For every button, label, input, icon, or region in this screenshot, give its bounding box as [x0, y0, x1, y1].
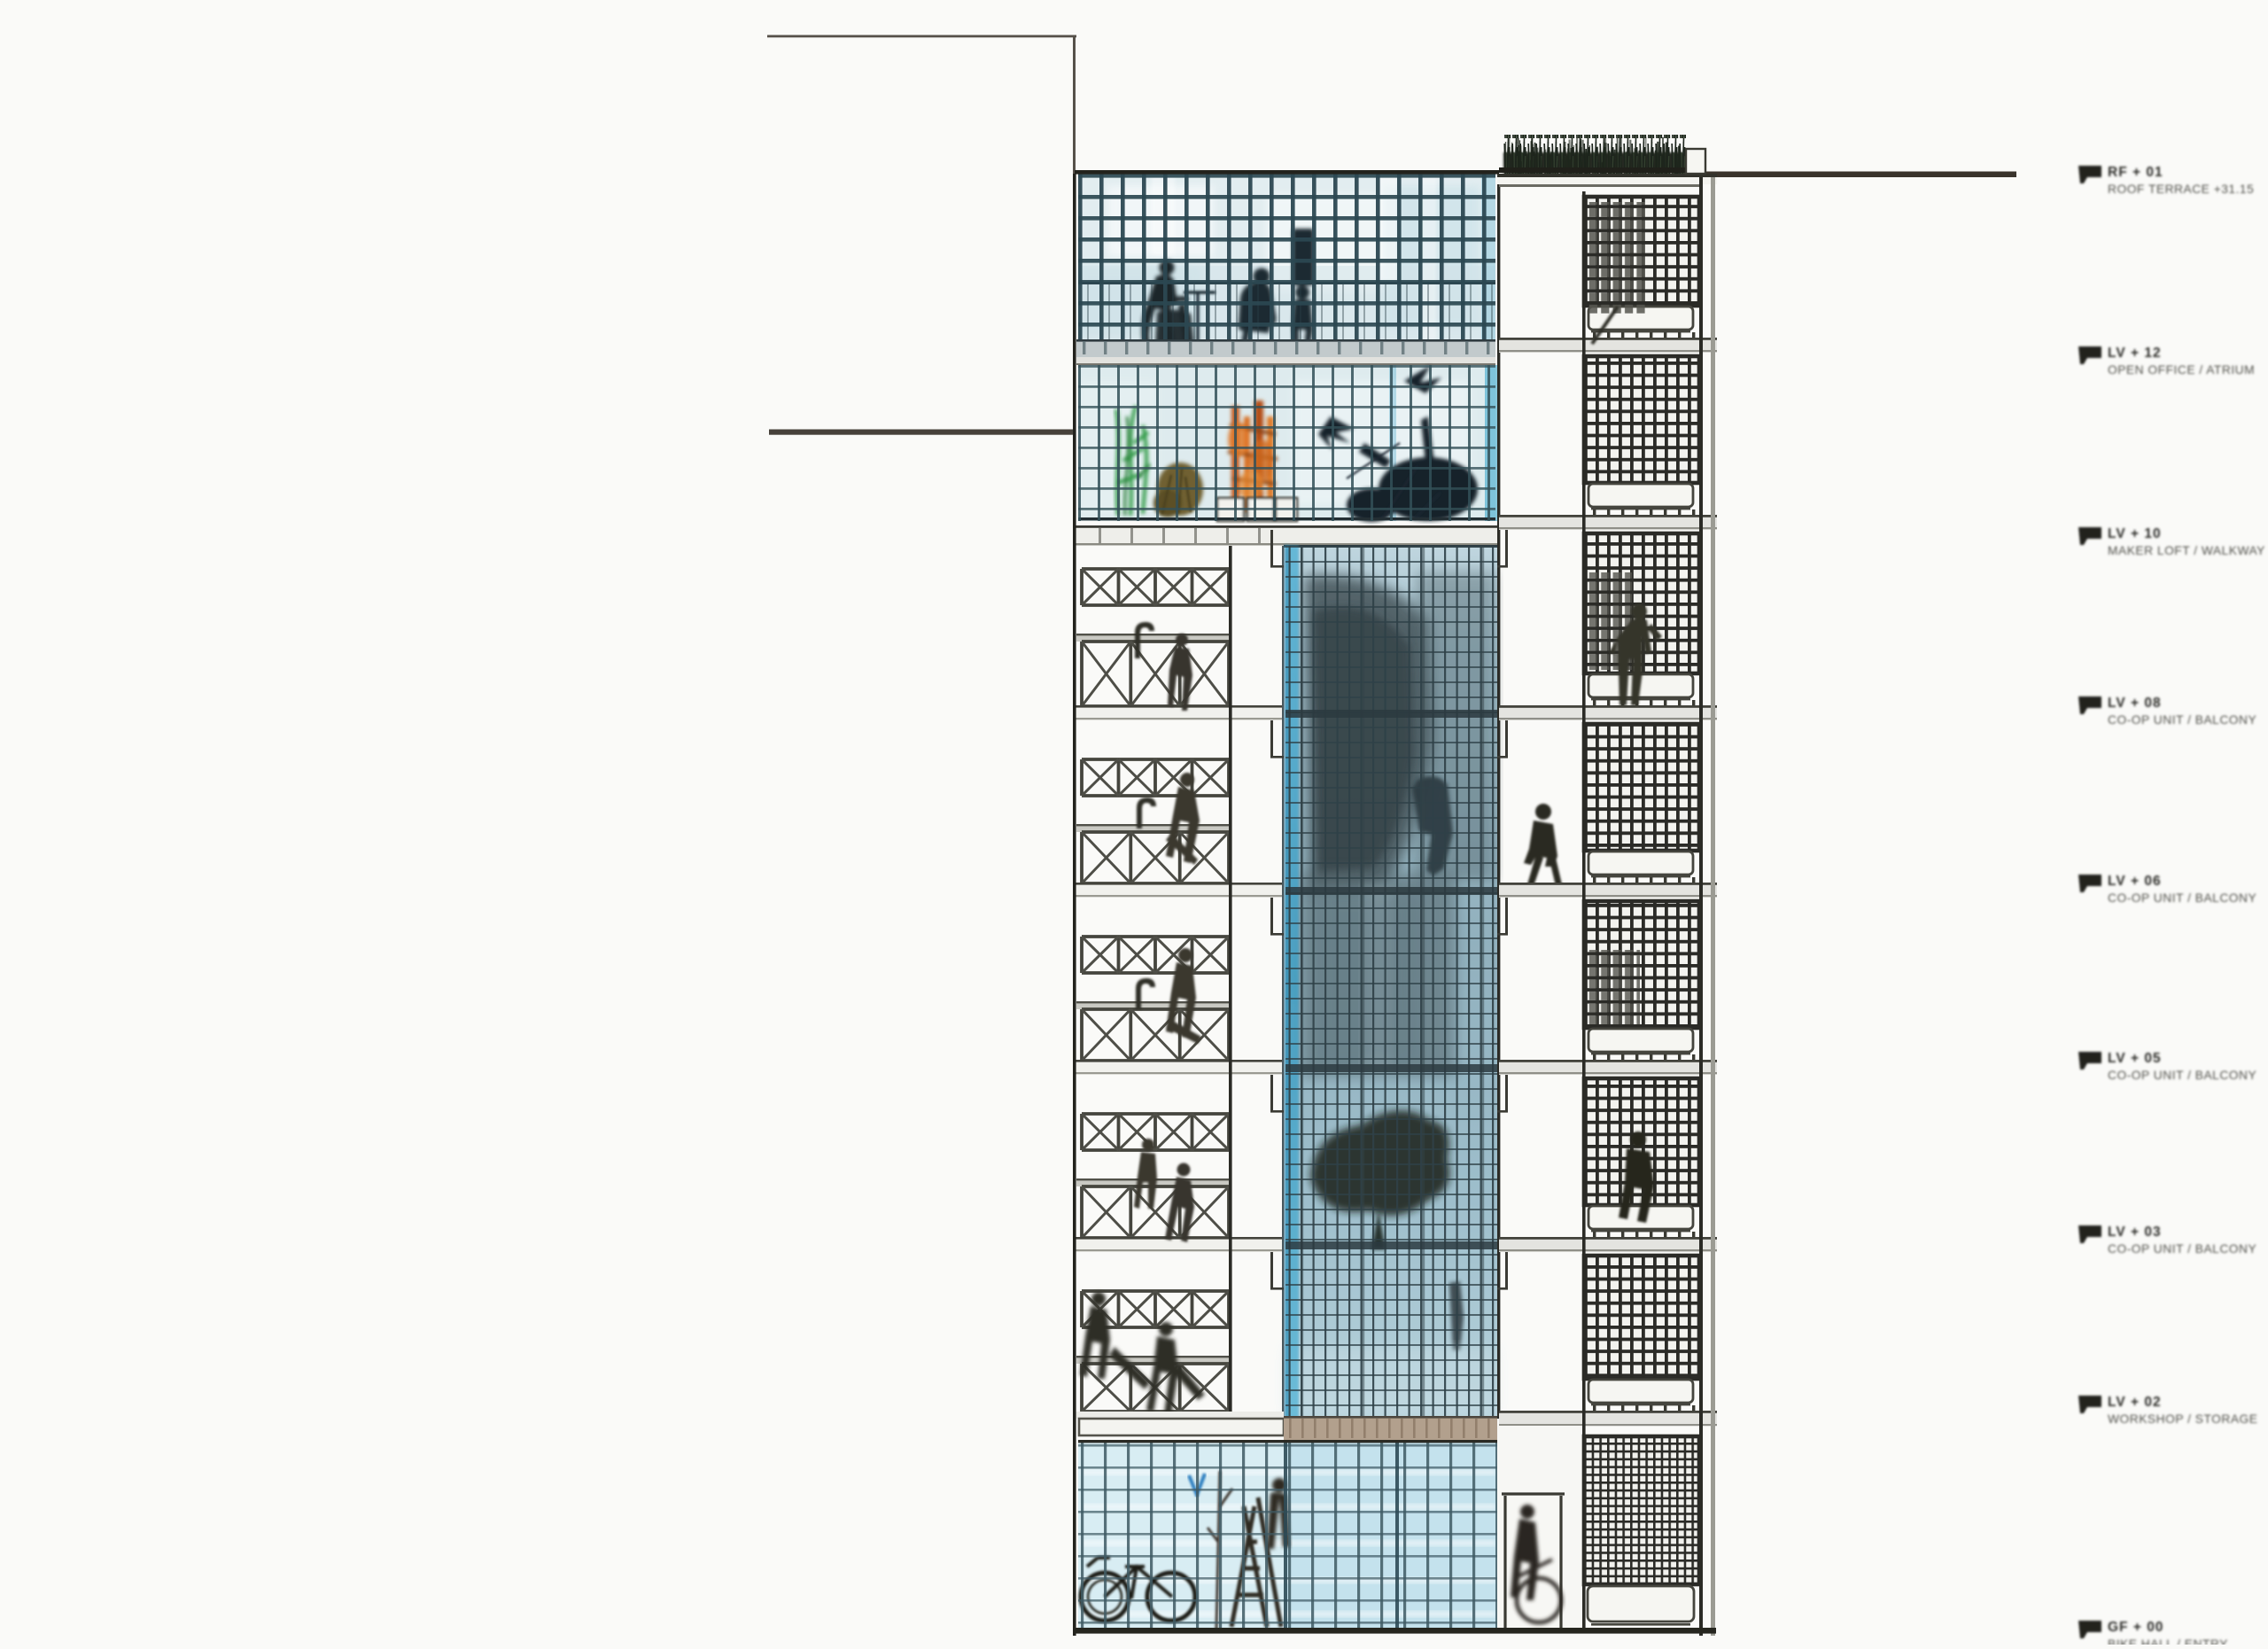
svg-text:OPEN OFFICE / ATRIUM: OPEN OFFICE / ATRIUM [2108, 363, 2255, 377]
svg-text:GF + 00: GF + 00 [2108, 1620, 2163, 1635]
svg-text:LV + 12: LV + 12 [2108, 346, 2162, 361]
svg-text:LV + 10: LV + 10 [2108, 526, 2162, 541]
svg-text:LV + 03: LV + 03 [2108, 1225, 2162, 1240]
svg-text:ROOF TERRACE +31.15: ROOF TERRACE +31.15 [2108, 183, 2254, 196]
svg-text:CO-OP UNIT / BALCONY: CO-OP UNIT / BALCONY [2108, 1242, 2256, 1256]
svg-text:MAKER LOFT / WALKWAY: MAKER LOFT / WALKWAY [2108, 544, 2265, 557]
svg-text:LV + 02: LV + 02 [2108, 1395, 2162, 1410]
svg-text:LV + 08: LV + 08 [2108, 696, 2162, 711]
svg-text:CO-OP UNIT / BALCONY: CO-OP UNIT / BALCONY [2108, 1069, 2256, 1082]
svg-text:LV + 06: LV + 06 [2108, 874, 2162, 889]
svg-text:RF + 01: RF + 01 [2108, 165, 2163, 180]
svg-text:WORKSHOP / STORAGE: WORKSHOP / STORAGE [2108, 1412, 2257, 1426]
svg-text:LV + 05: LV + 05 [2108, 1051, 2162, 1066]
svg-text:BIKE HALL / ENTRY: BIKE HALL / ENTRY [2108, 1637, 2228, 1645]
svg-text:CO-OP UNIT / BALCONY: CO-OP UNIT / BALCONY [2108, 713, 2256, 727]
svg-text:CO-OP UNIT / BALCONY: CO-OP UNIT / BALCONY [2108, 891, 2256, 905]
